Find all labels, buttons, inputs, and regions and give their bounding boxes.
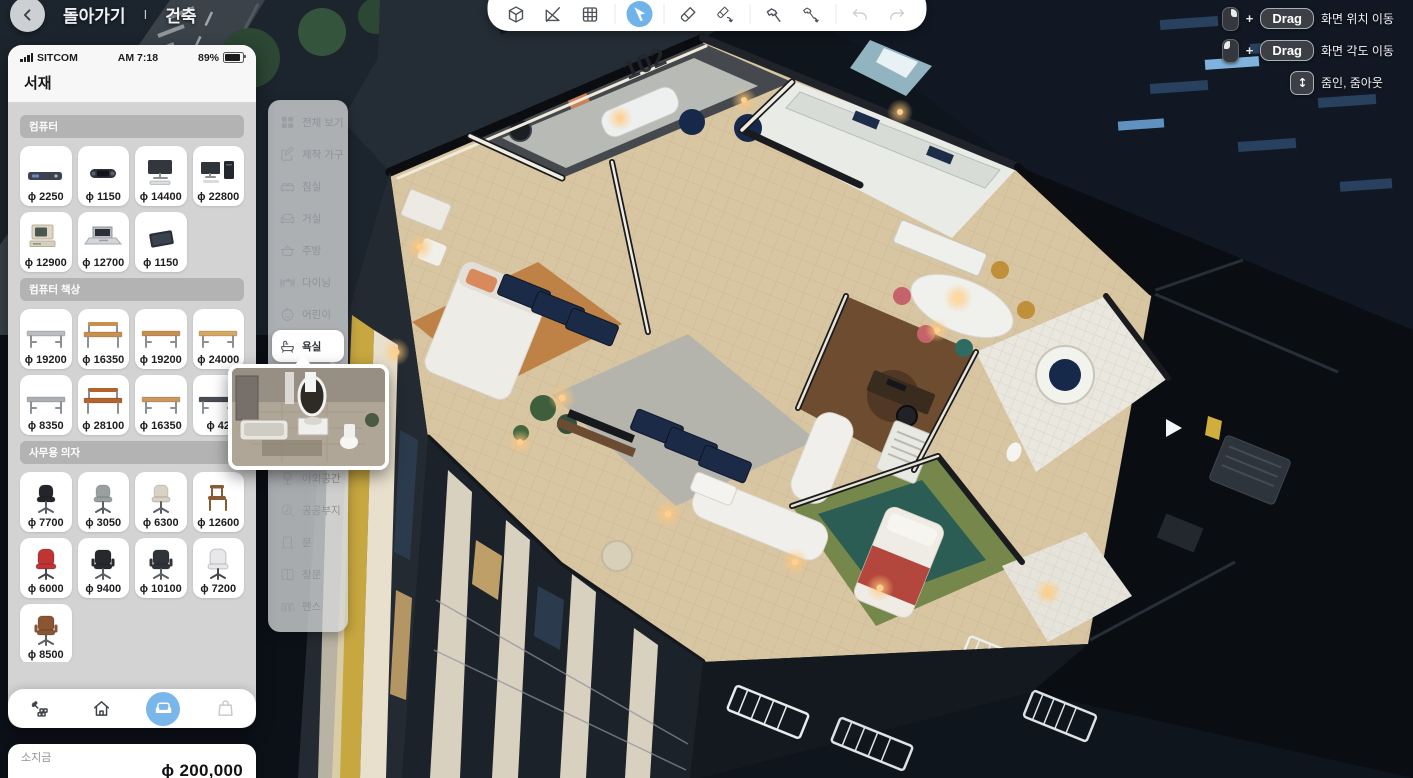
tree-icon [279,470,296,487]
category-label: 욕실 [302,339,321,354]
chairwood-thumbnail [194,480,242,517]
category-10[interactable]: 공공부지 [268,494,348,526]
toolbar-divider [614,4,615,24]
hammer-redo-icon [802,5,821,24]
catalog-item[interactable]: ɸ 14400 [135,146,187,206]
drag-keycap: Drag [1260,8,1314,29]
grid-all-icon [279,114,296,131]
header: 돌아가기 I 건축 [10,0,196,32]
plus-sign: + [1246,43,1254,58]
undo-icon [851,5,870,24]
catalog-item[interactable]: ɸ 1150 [78,146,130,206]
chairexec-thumbnail [79,546,127,583]
category-5[interactable]: 주방 [268,234,348,266]
undo-tool-button[interactable] [847,1,873,27]
category-label: 전체 보기 [302,115,344,130]
build-toolbar [487,0,926,31]
phone-nav-bar [8,689,256,728]
item-price: ɸ 1150 [143,257,178,269]
door-icon [279,534,296,551]
item-price: ɸ 8500 [28,649,64,661]
chair-thumbnail [22,480,70,517]
bag-icon [215,698,236,719]
category-label: 제작 가구 [302,147,344,162]
bath-icon [279,338,296,355]
gaming-thumbnail [194,546,242,583]
item-grid: ɸ 2250ɸ 1150ɸ 14400ɸ 22800ɸ 12900ɸ 12700… [20,146,244,272]
deskhutch-thumbnail [79,317,127,354]
section-header: 사무용 의자 [20,441,244,464]
section-header: 컴퓨터 [20,115,244,138]
category-12[interactable]: 창문 [268,558,348,590]
item-price: ɸ 8350 [28,420,64,432]
nav-shop-button[interactable] [208,692,242,726]
catalog-list[interactable]: 컴퓨터ɸ 2250ɸ 1150ɸ 14400ɸ 22800ɸ 12900ɸ 12… [8,102,256,662]
item-price: ɸ 19200 [140,354,182,366]
header-divider: I [144,7,148,22]
catalog-item[interactable]: ɸ 10100 [135,538,187,598]
catalog-item[interactable]: ɸ 6000 [20,538,72,598]
console-thumbnail [22,154,70,191]
category-label: 공공부지 [302,503,341,518]
item-price: ɸ 6300 [143,517,179,529]
catalog-item[interactable]: ɸ 3050 [78,472,130,532]
scroll-wheel-icon [1290,71,1314,95]
catalog-item[interactable]: ɸ 2250 [20,146,72,206]
item-price: ɸ 42 [206,420,230,432]
back-label: 돌아가기 [63,2,126,27]
catalog-phone-panel: SITCOM AM 7:18 89% 서재 컴퓨터ɸ 2250ɸ 1150ɸ 1… [8,45,256,728]
bed-icon [279,178,296,195]
view-mode-tool-button[interactable] [503,1,529,27]
item-price: ɸ 3050 [85,517,121,529]
dining-icon [279,274,296,291]
item-grid: ɸ 7700ɸ 3050ɸ 6300ɸ 12600ɸ 6000ɸ 9400ɸ 1… [20,472,244,662]
catalog-item[interactable]: ɸ 7700 [20,472,72,532]
chair-thumbnail [137,480,185,517]
catalog-item[interactable]: ɸ 1150 [135,212,187,272]
pc-thumbnail [194,154,242,191]
item-price: ɸ 19200 [25,354,67,366]
search-icon [279,502,296,519]
camera-help-label: 화면 각도 이동 [1321,42,1405,59]
money-bar: 소지금 ɸ 200,000 [8,744,256,778]
pot-icon [279,242,296,259]
mouse-right-button-icon [1222,7,1239,31]
camera-help-row: +Drag화면 위치 이동 [1222,6,1405,31]
camera-help-label: 화면 위치 이동 [1321,10,1405,27]
build-repeat-tool-button[interactable] [798,1,824,27]
back-button[interactable] [10,0,45,32]
camera-help-row: 줌인, 줌아웃 [1222,70,1405,95]
signal-icon [20,53,33,62]
plus-sign: + [1246,11,1254,26]
catalog-item[interactable]: ɸ 12600 [193,472,245,532]
catalog-item[interactable]: ɸ 16350 [78,309,130,369]
camera-help-label: 줌인, 줌아웃 [1321,74,1405,91]
cursor-icon [630,5,649,24]
category-label: 어린이 [302,307,331,322]
item-price: ɸ 12600 [197,517,239,529]
grid-icon [581,5,600,24]
item-price: ɸ 6000 [28,583,64,595]
catalog-item[interactable]: ɸ 19200 [135,309,187,369]
home-icon [91,698,112,719]
terrain-icon [29,698,50,719]
measure-tool-button[interactable] [540,1,566,27]
item-price: ɸ 16350 [140,420,182,432]
deskhutch-thumbnail [79,383,127,420]
section-header: 컴퓨터 책상 [20,278,244,301]
edit-icon [279,146,296,163]
category-label: 거실 [302,211,321,226]
item-price: ɸ 7200 [200,583,236,595]
tablet-thumbnail [137,220,185,257]
catalog-item[interactable]: ɸ 7200 [193,538,245,598]
tooltip-notch [294,355,312,366]
fence-icon [279,598,296,615]
category-label: 침실 [302,179,321,194]
brush-redo-icon [716,5,735,24]
clock-label: AM 7:18 [78,52,198,64]
phone-status-bar: SITCOM AM 7:18 89% [20,49,244,66]
catalog-item[interactable]: ɸ 12700 [78,212,130,272]
item-price: ɸ 22800 [197,191,239,203]
sofa-fill-icon [153,698,174,719]
catalog-item[interactable]: ɸ 8350 [20,375,72,435]
item-price: ɸ 28100 [82,420,124,432]
battery-icon [223,52,244,63]
desk-thumbnail [137,317,185,354]
battery-percent: 89% [198,52,219,64]
category-11[interactable]: 문 [268,526,348,558]
chairexec-thumbnail [22,612,70,649]
chairexec-thumbnail [137,546,185,583]
measure-icon [544,5,563,24]
mouse-left-button-icon [1222,39,1239,63]
chair-thumbnail [79,480,127,517]
chevron-left-icon [18,5,38,25]
sofa-icon [279,210,296,227]
catalog-item[interactable]: ɸ 6300 [135,472,187,532]
redo-icon [888,5,907,24]
category-label: 창문 [302,567,321,582]
category-label: 다이닝 [302,275,331,290]
monitor-thumbnail [137,154,185,191]
item-price: ɸ 16350 [82,354,124,366]
carrier-label: SITCOM [37,52,78,64]
desk-thumbnail [194,317,242,354]
catalog-item[interactable]: ɸ 24000 [193,309,245,369]
gaming-thumbnail [22,546,70,583]
bathroom-preview-image [232,368,385,466]
catalog-item[interactable]: ɸ 8500 [20,604,72,662]
hammer-icon [765,5,784,24]
laptop-thumbnail [79,220,127,257]
category-13[interactable]: 펜스 [268,590,348,622]
paint-tool-button[interactable] [675,1,701,27]
toolbar-divider [663,4,664,24]
catalog-item[interactable]: ɸ 28100 [78,375,130,435]
cube-icon [507,5,526,24]
catalog-item[interactable]: ɸ 9400 [78,538,130,598]
nav-terrain-button[interactable] [22,692,56,726]
camera-help-panel: +Drag화면 위치 이동+Drag화면 각도 이동줌인, 줌아웃 [1222,6,1405,95]
category-1[interactable]: 전체 보기 [268,106,348,138]
catalog-title: 서재 [20,66,244,102]
mode-label: 건축 [165,2,196,27]
category-label: 주방 [302,243,321,258]
catalog-item[interactable]: ɸ 22800 [193,146,245,206]
nav-furniture-button[interactable] [146,692,180,726]
item-grid: ɸ 19200ɸ 16350ɸ 19200ɸ 24000ɸ 8350ɸ 2810… [20,309,244,435]
toolbar-divider [749,4,750,24]
handheld-thumbnail [79,154,127,191]
grid-tool-button[interactable] [577,1,603,27]
desk-thumbnail [22,317,70,354]
category-7[interactable]: 어린이 [268,298,348,330]
item-price: ɸ 2250 [28,191,64,203]
window-icon [279,566,296,583]
phone-header: SITCOM AM 7:18 89% 서재 [8,45,256,102]
brush-icon [679,5,698,24]
catalog-item[interactable]: ɸ 16350 [135,375,187,435]
toolbar-divider [835,4,836,24]
catalog-item[interactable]: ɸ 12900 [20,212,72,272]
catalog-item[interactable]: ɸ 19200 [20,309,72,369]
paint-repeat-tool-button[interactable] [712,1,738,27]
camera-help-row: +Drag화면 각도 이동 [1222,38,1405,63]
category-4[interactable]: 거실 [268,202,348,234]
build-tool-button[interactable] [761,1,787,27]
redo-tool-button[interactable] [884,1,910,27]
item-price: ɸ 12700 [82,257,124,269]
game-screen: 102 [0,0,1413,778]
item-price: ɸ 14400 [140,191,182,203]
category-label: 야외공간 [302,471,341,486]
retro-thumbnail [22,220,70,257]
category-3[interactable]: 침실 [268,170,348,202]
drag-keycap: Drag [1260,40,1314,61]
desk-thumbnail [137,383,185,420]
money-amount: ɸ 200,000 [21,761,243,778]
item-price: ɸ 7700 [28,517,64,529]
category-6[interactable]: 다이닝 [268,266,348,298]
item-price: ɸ 12900 [25,257,67,269]
category-preview-tooltip [228,364,389,470]
item-price: ɸ 9400 [85,583,121,595]
kid-icon [279,306,296,323]
nav-home-button[interactable] [84,692,118,726]
item-price: ɸ 1150 [86,191,121,203]
category-2[interactable]: 제작 가구 [268,138,348,170]
category-label: 펜스 [302,599,321,614]
item-price: ɸ 10100 [140,583,182,595]
desk-thumbnail [22,383,70,420]
select-tool-button[interactable] [626,1,652,27]
category-label: 문 [302,535,312,550]
